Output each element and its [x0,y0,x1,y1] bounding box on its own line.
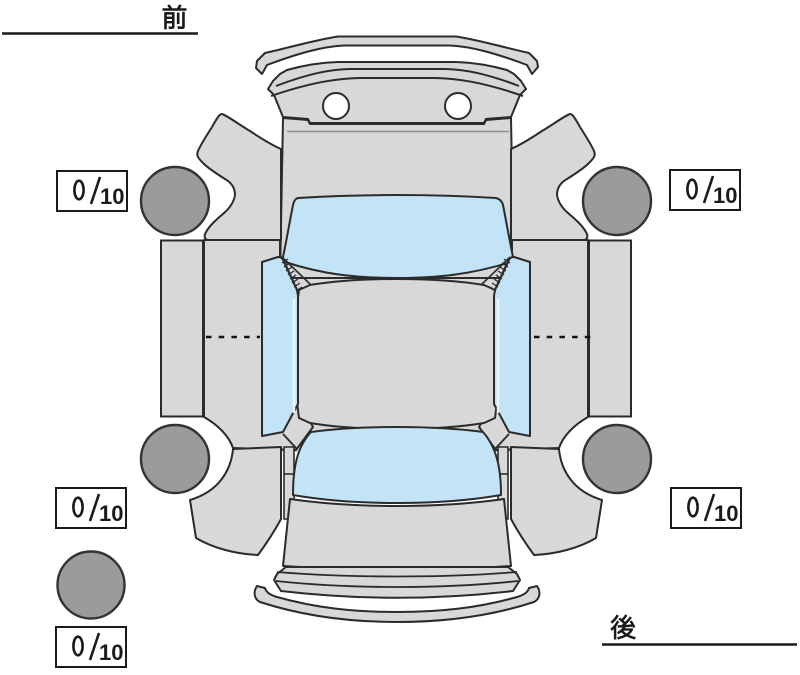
svg-text:10: 10 [100,184,124,209]
